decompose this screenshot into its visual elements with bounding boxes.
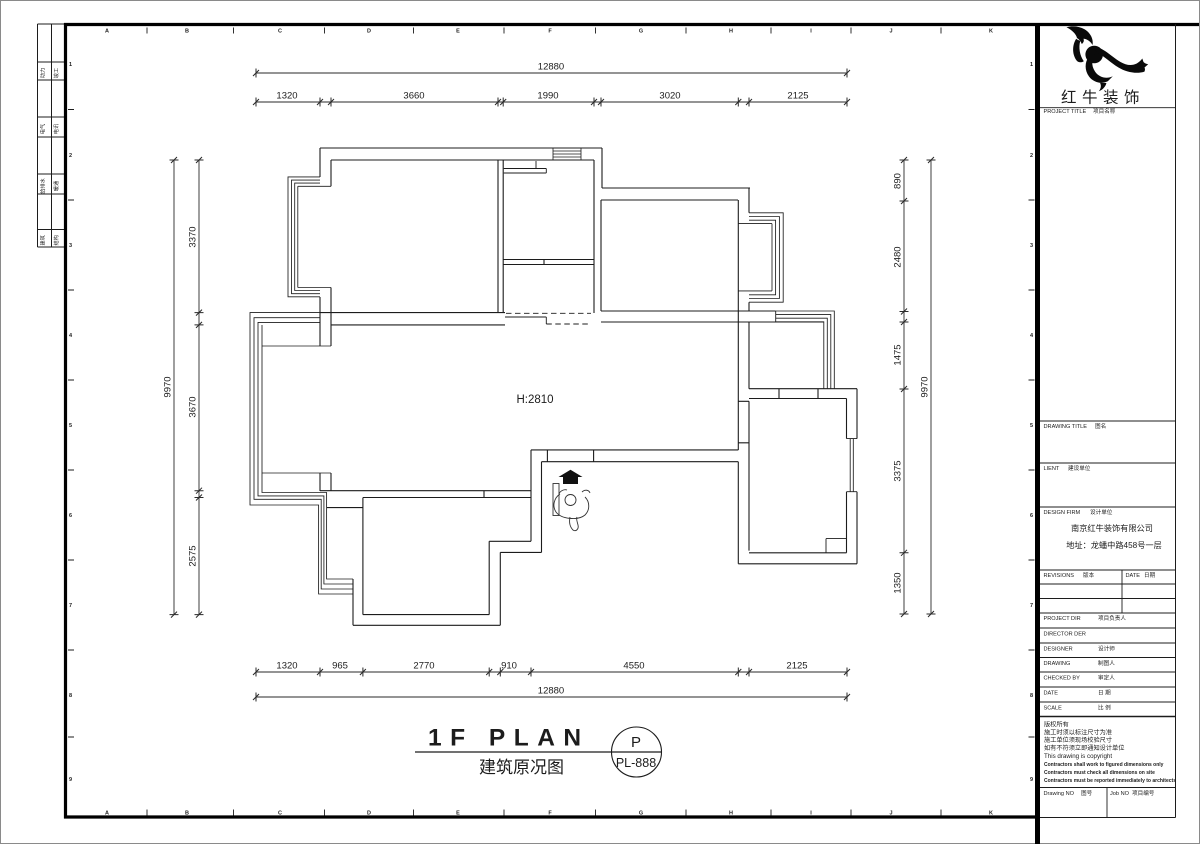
svg-text:P: P [631, 734, 641, 751]
svg-text:施工单位须现场校验尺寸: 施工单位须现场校验尺寸 [1044, 736, 1112, 744]
svg-text:D: D [367, 29, 371, 35]
svg-text:3660: 3660 [403, 91, 424, 102]
svg-text:A: A [105, 29, 109, 35]
svg-text:8: 8 [69, 693, 72, 699]
svg-text:红牛装饰: 红牛装饰 [1061, 89, 1145, 107]
svg-text:设计单位: 设计单位 [1090, 508, 1113, 516]
svg-text:4550: 4550 [623, 661, 644, 672]
svg-text:如有不符须立即通知设计单位: 如有不符须立即通知设计单位 [1044, 744, 1124, 752]
svg-text:DESIGN FIRM: DESIGN FIRM [1044, 510, 1081, 516]
svg-text:2: 2 [69, 153, 72, 159]
svg-text:965: 965 [332, 661, 348, 672]
svg-text:1: 1 [69, 62, 72, 68]
svg-text:CHECKED BY: CHECKED BY [1044, 676, 1081, 682]
svg-text:C: C [278, 811, 282, 817]
svg-text:2125: 2125 [786, 661, 807, 672]
svg-text:比 例: 比 例 [1098, 704, 1111, 712]
svg-text:2125: 2125 [787, 91, 808, 102]
svg-text:7: 7 [69, 603, 72, 609]
svg-text:6: 6 [69, 513, 72, 519]
svg-text:9970: 9970 [920, 376, 931, 397]
svg-text:B: B [185, 29, 189, 35]
svg-text:建筑: 建筑 [39, 234, 47, 245]
svg-text:竣工: 竣工 [52, 68, 60, 78]
svg-text:审定人: 审定人 [1098, 674, 1115, 682]
svg-text:2480: 2480 [893, 246, 904, 267]
svg-text:1475: 1475 [893, 344, 904, 365]
svg-text:K: K [989, 29, 993, 35]
svg-text:REVISIONS: REVISIONS [1044, 573, 1075, 579]
svg-text:8: 8 [1030, 693, 1033, 699]
svg-text:K: K [989, 811, 993, 817]
svg-text:电讯: 电讯 [52, 123, 60, 134]
svg-text:PROJECT DIR: PROJECT DIR [1044, 616, 1081, 622]
svg-text:版权所有: 版权所有 [1044, 721, 1069, 729]
svg-text:A: A [105, 811, 109, 817]
svg-text:项目编号: 项目编号 [1132, 789, 1155, 797]
svg-text:Job NO: Job NO [1110, 791, 1130, 797]
svg-text:3020: 3020 [659, 91, 680, 102]
svg-text:Contractors shall work to figu: Contractors shall work to figured dimens… [1044, 762, 1164, 768]
svg-text:3670: 3670 [188, 396, 199, 417]
svg-text:项目名称: 项目名称 [1093, 107, 1116, 115]
svg-text:暖通: 暖通 [52, 180, 60, 191]
svg-text:6: 6 [1030, 513, 1033, 519]
svg-text:Contractors must check all dim: Contractors must check all dimensions on… [1044, 770, 1155, 776]
svg-text:2770: 2770 [413, 661, 434, 672]
svg-text:Drawing NO: Drawing NO [1044, 791, 1075, 797]
svg-text:3370: 3370 [188, 226, 199, 247]
svg-text:B: B [185, 811, 189, 817]
svg-text:7: 7 [1030, 603, 1033, 609]
svg-text:南京红牛装饰有限公司: 南京红牛装饰有限公司 [1071, 523, 1153, 533]
svg-text:3375: 3375 [893, 460, 904, 481]
svg-text:PROJECT TITLE: PROJECT TITLE [1044, 109, 1087, 115]
svg-text:Contractors must be reported i: Contractors must be reported immediately… [1044, 778, 1176, 784]
svg-text:PL-888: PL-888 [616, 756, 656, 770]
svg-text:结构: 结构 [52, 235, 60, 245]
svg-text:建筑原况图: 建筑原况图 [479, 758, 564, 777]
svg-text:日 期: 日 期 [1098, 690, 1111, 697]
svg-text:C: C [278, 29, 282, 35]
svg-text:H: H [729, 811, 733, 817]
svg-text:G: G [639, 811, 643, 817]
svg-text:1350: 1350 [893, 572, 904, 593]
svg-text:H:2810: H:2810 [516, 394, 553, 406]
svg-text:9970: 9970 [163, 376, 174, 397]
svg-text:J: J [889, 811, 892, 817]
svg-text:DIRECTOR DER: DIRECTOR DER [1044, 632, 1086, 638]
svg-text:H: H [729, 29, 733, 35]
svg-text:2575: 2575 [188, 545, 199, 566]
svg-text:5: 5 [1030, 423, 1033, 429]
svg-text:电气: 电气 [39, 124, 47, 134]
svg-text:E: E [456, 811, 460, 817]
svg-text:DESIGNER: DESIGNER [1044, 647, 1073, 653]
svg-text:G: G [639, 29, 643, 35]
svg-text:D: D [367, 811, 371, 817]
svg-text:设计师: 设计师 [1098, 645, 1115, 653]
svg-text:DRAWING: DRAWING [1044, 661, 1071, 667]
svg-text:910: 910 [501, 661, 517, 672]
svg-text:DRAWING TITLE: DRAWING TITLE [1044, 424, 1088, 430]
svg-text:1320: 1320 [276, 91, 297, 102]
svg-text:版本: 版本 [1083, 571, 1095, 579]
svg-text:项目负责人: 项目负责人 [1098, 614, 1126, 622]
svg-text:制图人: 制图人 [1098, 659, 1115, 667]
svg-text:1F PLAN: 1F PLAN [428, 725, 590, 752]
svg-text:地址：龙蟠中路458号一层: 地址：龙蟠中路458号一层 [1066, 540, 1162, 550]
svg-text:1: 1 [1030, 62, 1033, 68]
svg-text:DATE: DATE [1126, 573, 1141, 579]
svg-text:图名: 图名 [1095, 422, 1106, 430]
svg-text:施工时须以标注尺寸为准: 施工时须以标注尺寸为准 [1044, 729, 1112, 737]
svg-text:3: 3 [1030, 243, 1033, 249]
svg-text:12880: 12880 [538, 686, 564, 697]
svg-text:This drawing is copyright: This drawing is copyright [1044, 753, 1112, 760]
svg-text:9: 9 [69, 777, 72, 783]
svg-text:给排水: 给排水 [39, 177, 47, 193]
svg-text:890: 890 [893, 173, 904, 189]
svg-text:3: 3 [69, 243, 72, 249]
svg-text:E: E [456, 29, 460, 35]
svg-text:图号: 图号 [1081, 789, 1093, 797]
svg-text:12880: 12880 [538, 62, 564, 73]
svg-text:日期: 日期 [1144, 572, 1156, 579]
svg-text:建设单位: 建设单位 [1068, 464, 1091, 472]
svg-text:J: J [889, 29, 892, 35]
svg-text:1320: 1320 [276, 661, 297, 672]
svg-text:LIENT: LIENT [1044, 466, 1060, 472]
svg-text:1990: 1990 [537, 91, 558, 102]
svg-text:动力: 动力 [39, 68, 47, 78]
svg-text:9: 9 [1030, 777, 1033, 783]
svg-text:2: 2 [1030, 153, 1033, 159]
svg-text:DATE: DATE [1044, 691, 1059, 697]
svg-text:SCALE: SCALE [1044, 706, 1063, 712]
svg-text:5: 5 [69, 423, 72, 429]
